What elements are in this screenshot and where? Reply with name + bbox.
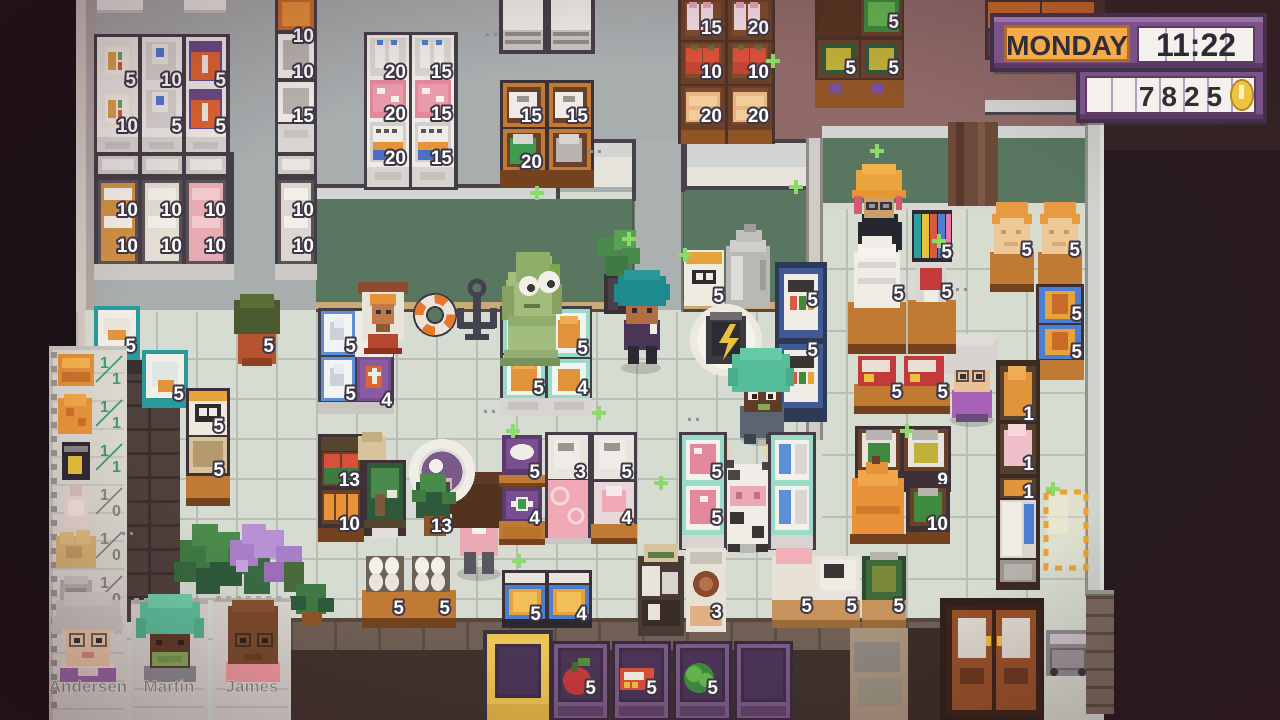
svg-text:7825: 7825: [1139, 81, 1229, 112]
svg-text:MONDAY: MONDAY: [1006, 30, 1128, 61]
svg-text:11:22: 11:22: [1156, 27, 1236, 63]
